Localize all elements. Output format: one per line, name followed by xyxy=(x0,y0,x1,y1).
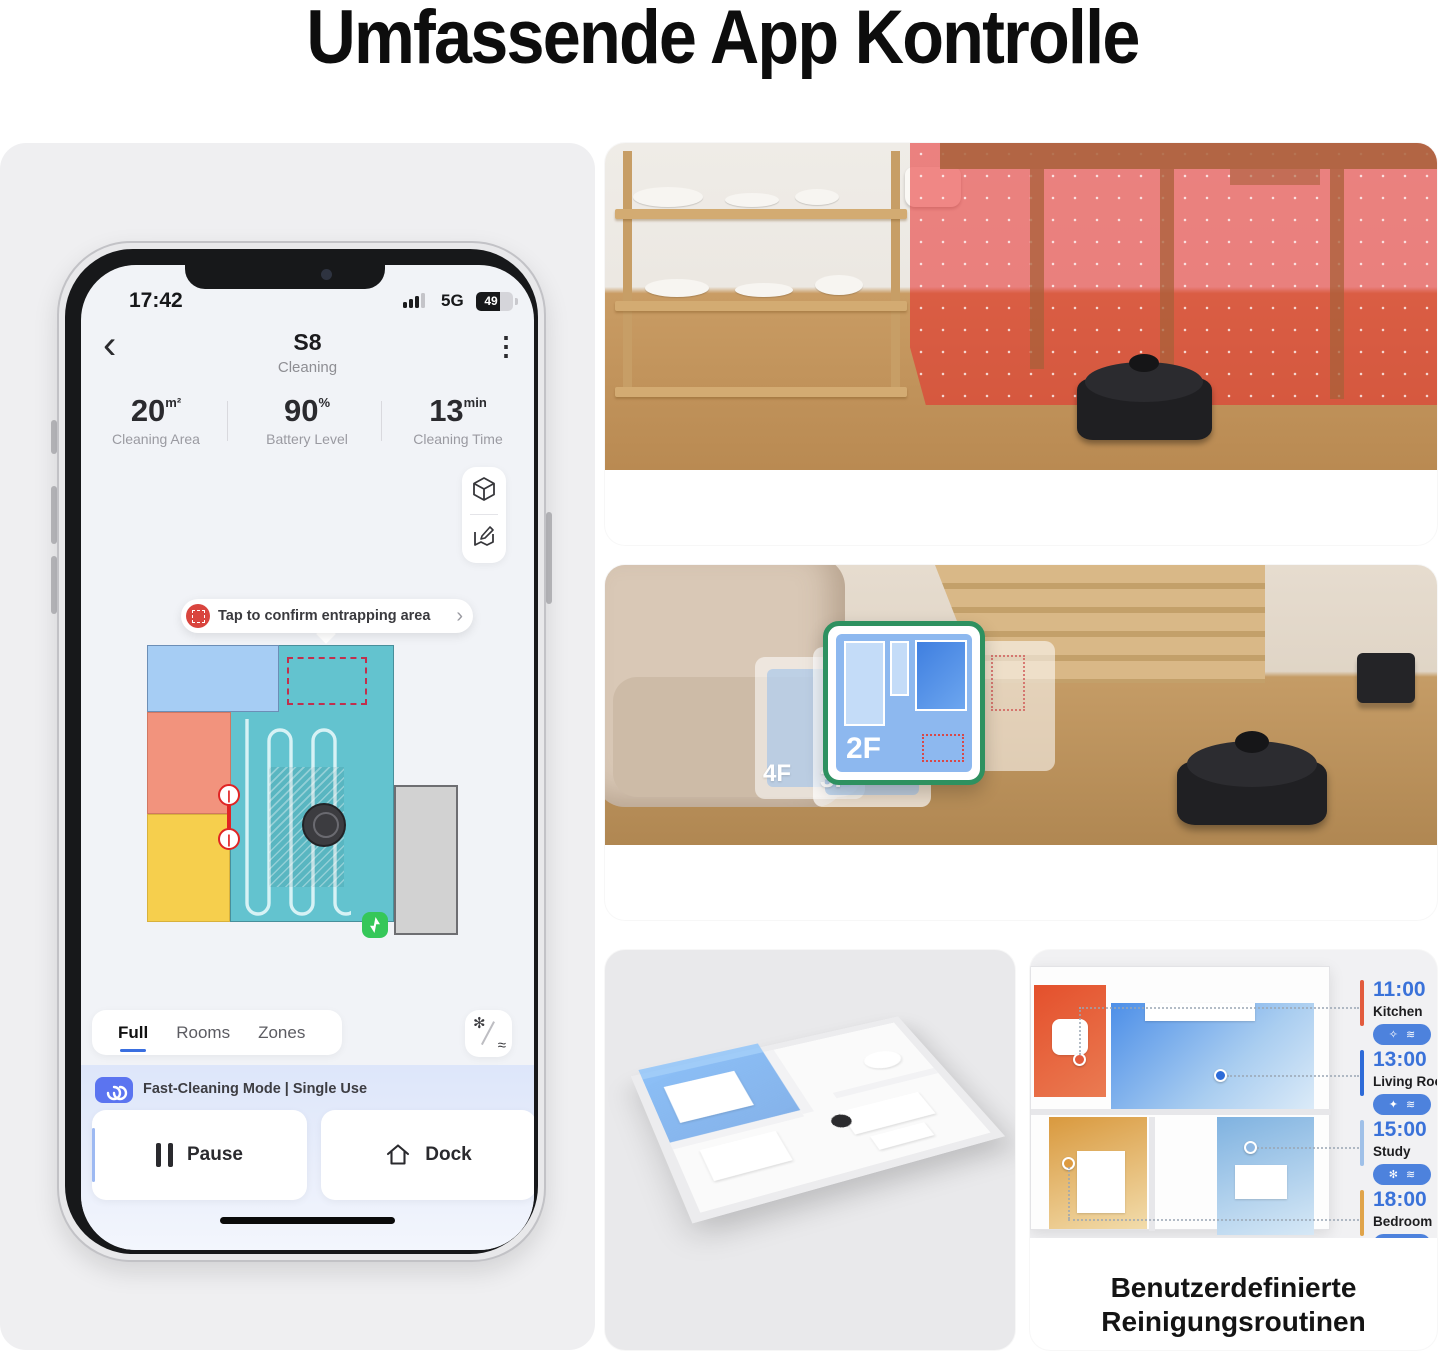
mop-icon: ≋ xyxy=(1406,1028,1415,1041)
battery-level-unit: % xyxy=(318,395,330,410)
mode-banner-text: Fast-Cleaning Mode | Single Use xyxy=(143,1081,367,1097)
pause-icon xyxy=(156,1143,173,1167)
vacuum-mop-toggle-button[interactable]: ✻ ≈ xyxy=(465,1010,512,1057)
charging-dock xyxy=(1357,653,1415,703)
tab-zones[interactable]: Zones xyxy=(258,1023,305,1043)
stat-divider xyxy=(381,401,382,441)
spray-icon: ✧ xyxy=(1389,1028,1398,1041)
device-title: S8 xyxy=(81,329,534,356)
entrapping-area-tooltip[interactable]: Tap to confirm entrapping area › xyxy=(181,599,473,633)
pause-button[interactable]: Pause xyxy=(92,1110,307,1200)
dock-home-icon xyxy=(385,1142,411,1168)
phone-frame: 17:42 5G 49 ‹ S8 Cleaning ⋮ xyxy=(57,241,546,1262)
clean-icon: ✦ xyxy=(1389,1098,1398,1111)
feature-card-3d-mapping: 3D-Kartierung xyxy=(605,950,1015,1350)
cleaning-time-unit: min xyxy=(464,395,487,410)
stat-battery-level: 90% Battery Level xyxy=(232,393,382,447)
floor-card-2f-selected: 2F xyxy=(823,621,985,785)
virtual-wall-pin[interactable]: | xyxy=(218,784,240,806)
no-go-zone-photo xyxy=(605,143,1437,470)
cleaning-time-value: 13 xyxy=(429,393,463,428)
map-room-yellow[interactable] xyxy=(147,814,230,922)
network-type-label: 5G xyxy=(441,291,464,311)
dishes xyxy=(633,187,703,207)
map-room-blue[interactable] xyxy=(147,645,279,712)
device-status-subtitle: Cleaning xyxy=(81,359,534,376)
routine-accent-bar xyxy=(1360,1190,1364,1236)
mop-icon: ≋ xyxy=(1406,1098,1415,1111)
fan-icon: ✻ xyxy=(1389,1168,1398,1181)
cleaning-map[interactable]: | | xyxy=(145,645,459,937)
armchair xyxy=(860,1048,906,1071)
floor-label-4f: 4F xyxy=(763,760,791,788)
vacuum-icon: ✻ xyxy=(473,1014,486,1032)
virtual-wall-pin[interactable]: | xyxy=(218,828,240,850)
dock-marker xyxy=(362,912,388,938)
entrapping-zone-icon xyxy=(186,604,210,628)
phone-bezel: 17:42 5G 49 ‹ S8 Cleaning ⋮ xyxy=(65,249,538,1254)
map-tools-panel xyxy=(462,467,506,563)
front-camera xyxy=(321,269,332,280)
shelf xyxy=(623,151,632,391)
leader-line xyxy=(1079,1007,1081,1055)
map-room-gray[interactable] xyxy=(394,785,458,935)
robot-vacuum xyxy=(1077,378,1212,440)
tooltip-text: Tap to confirm entrapping area xyxy=(218,608,430,624)
routine-time: 13:00 xyxy=(1373,1048,1427,1072)
phone-notch xyxy=(185,259,385,289)
plan-living-room xyxy=(1111,1003,1314,1111)
dining-table xyxy=(940,143,1437,169)
status-time: 17:42 xyxy=(129,289,183,313)
plan-study xyxy=(1217,1117,1314,1235)
routine-accent-bar xyxy=(1360,1050,1364,1096)
page-title: Umfassende App Kontrolle xyxy=(72,0,1373,81)
cleaning-area-unit: m² xyxy=(165,395,181,410)
routine-room: Living Room xyxy=(1373,1074,1437,1089)
floor-plan-2f: 2F xyxy=(836,634,972,772)
phone-screen: 17:42 5G 49 ‹ S8 Cleaning ⋮ xyxy=(81,265,534,1250)
routine-room: Bedroom xyxy=(1373,1214,1432,1229)
plan-room xyxy=(844,641,885,727)
battery-percent: 49 xyxy=(476,294,506,308)
routine-time: 18:00 xyxy=(1373,1188,1427,1212)
routine-mode-pill: ✧ ≋ xyxy=(1373,1024,1431,1045)
3d-view-icon[interactable] xyxy=(473,477,495,501)
battery-level-label: Battery Level xyxy=(232,431,382,447)
floor-card-right xyxy=(977,641,1055,771)
map-edit-icon[interactable] xyxy=(473,524,495,548)
battery-level-value: 90 xyxy=(284,393,318,428)
power-button xyxy=(546,512,552,604)
more-menu-button[interactable]: ⋮ xyxy=(493,331,519,362)
map-tools-divider xyxy=(470,514,498,515)
chevron-right-icon: › xyxy=(456,605,463,628)
suggested-no-go-zone[interactable] xyxy=(287,657,367,705)
routine-dot-living xyxy=(1214,1069,1227,1082)
battery-nub xyxy=(515,298,518,305)
mop-icon: ≈ xyxy=(498,1037,506,1054)
feature-card-multi-floor: 4F 3F 2F Kartierungssystem für mehrgesch… xyxy=(605,565,1437,920)
routine-floorplan xyxy=(1030,966,1330,1230)
plan-no-go-rect xyxy=(922,734,964,762)
routine-mode-pill: ✻ ≋ xyxy=(1373,1164,1431,1185)
feature-card-no-go-zones: Smarte Vorschläge für Sperrzonen xyxy=(605,143,1437,545)
stat-cleaning-area: 20m² Cleaning Area xyxy=(81,393,231,447)
robot-vacuum xyxy=(1177,761,1327,825)
mop-icon: ≋ xyxy=(1406,1168,1415,1181)
cleaning-time-label: Cleaning Time xyxy=(383,431,533,447)
plan-kitchen xyxy=(1034,985,1106,1097)
cleaning-area-value: 20 xyxy=(131,393,165,428)
dock-label: Dock xyxy=(425,1144,471,1166)
dock-button[interactable]: Dock xyxy=(321,1110,534,1200)
floor-label-2f: 2F xyxy=(846,732,881,766)
plan-room-highlight xyxy=(915,640,967,712)
cleaning-area-label: Cleaning Area xyxy=(81,431,231,447)
home-indicator[interactable] xyxy=(220,1217,395,1224)
routine-time: 15:00 xyxy=(1373,1118,1427,1142)
battery-icon: 49 xyxy=(476,292,513,311)
feature-card-routines: 11:00 Kitchen ✧ ≋ 13:00 Living Room ✦ ≋ … xyxy=(1030,950,1437,1350)
multi-floor-photo: 4F 3F 2F xyxy=(605,565,1437,845)
plan-bedroom xyxy=(1049,1117,1147,1229)
tab-full[interactable]: Full xyxy=(118,1023,148,1043)
routine-room: Study xyxy=(1373,1144,1411,1159)
signal-icon xyxy=(403,293,427,308)
tab-rooms[interactable]: Rooms xyxy=(176,1023,230,1043)
apartment-model xyxy=(631,1016,1005,1223)
clean-scope-tabs: Full Rooms Zones xyxy=(92,1010,342,1055)
pause-label: Pause xyxy=(187,1144,243,1166)
3d-floorplan xyxy=(633,980,987,1230)
routine-accent-bar xyxy=(1360,1120,1364,1166)
fast-clean-badge-icon xyxy=(95,1077,133,1103)
caption-routines-line1: Benutzerdefinierte xyxy=(1030,1272,1437,1304)
routine-dot-study xyxy=(1244,1141,1257,1154)
stat-divider xyxy=(227,401,228,441)
caption-routines-line2: Reinigungsroutinen xyxy=(1030,1306,1437,1338)
routine-time: 11:00 xyxy=(1373,978,1426,1002)
routine-mode-pill: ✦ ≋ xyxy=(1373,1094,1431,1115)
routine-accent-bar xyxy=(1360,980,1364,1026)
robot-position-marker[interactable] xyxy=(302,803,346,847)
routine-room: Kitchen xyxy=(1373,1004,1423,1019)
stat-cleaning-time: 13min Cleaning Time xyxy=(383,393,533,447)
